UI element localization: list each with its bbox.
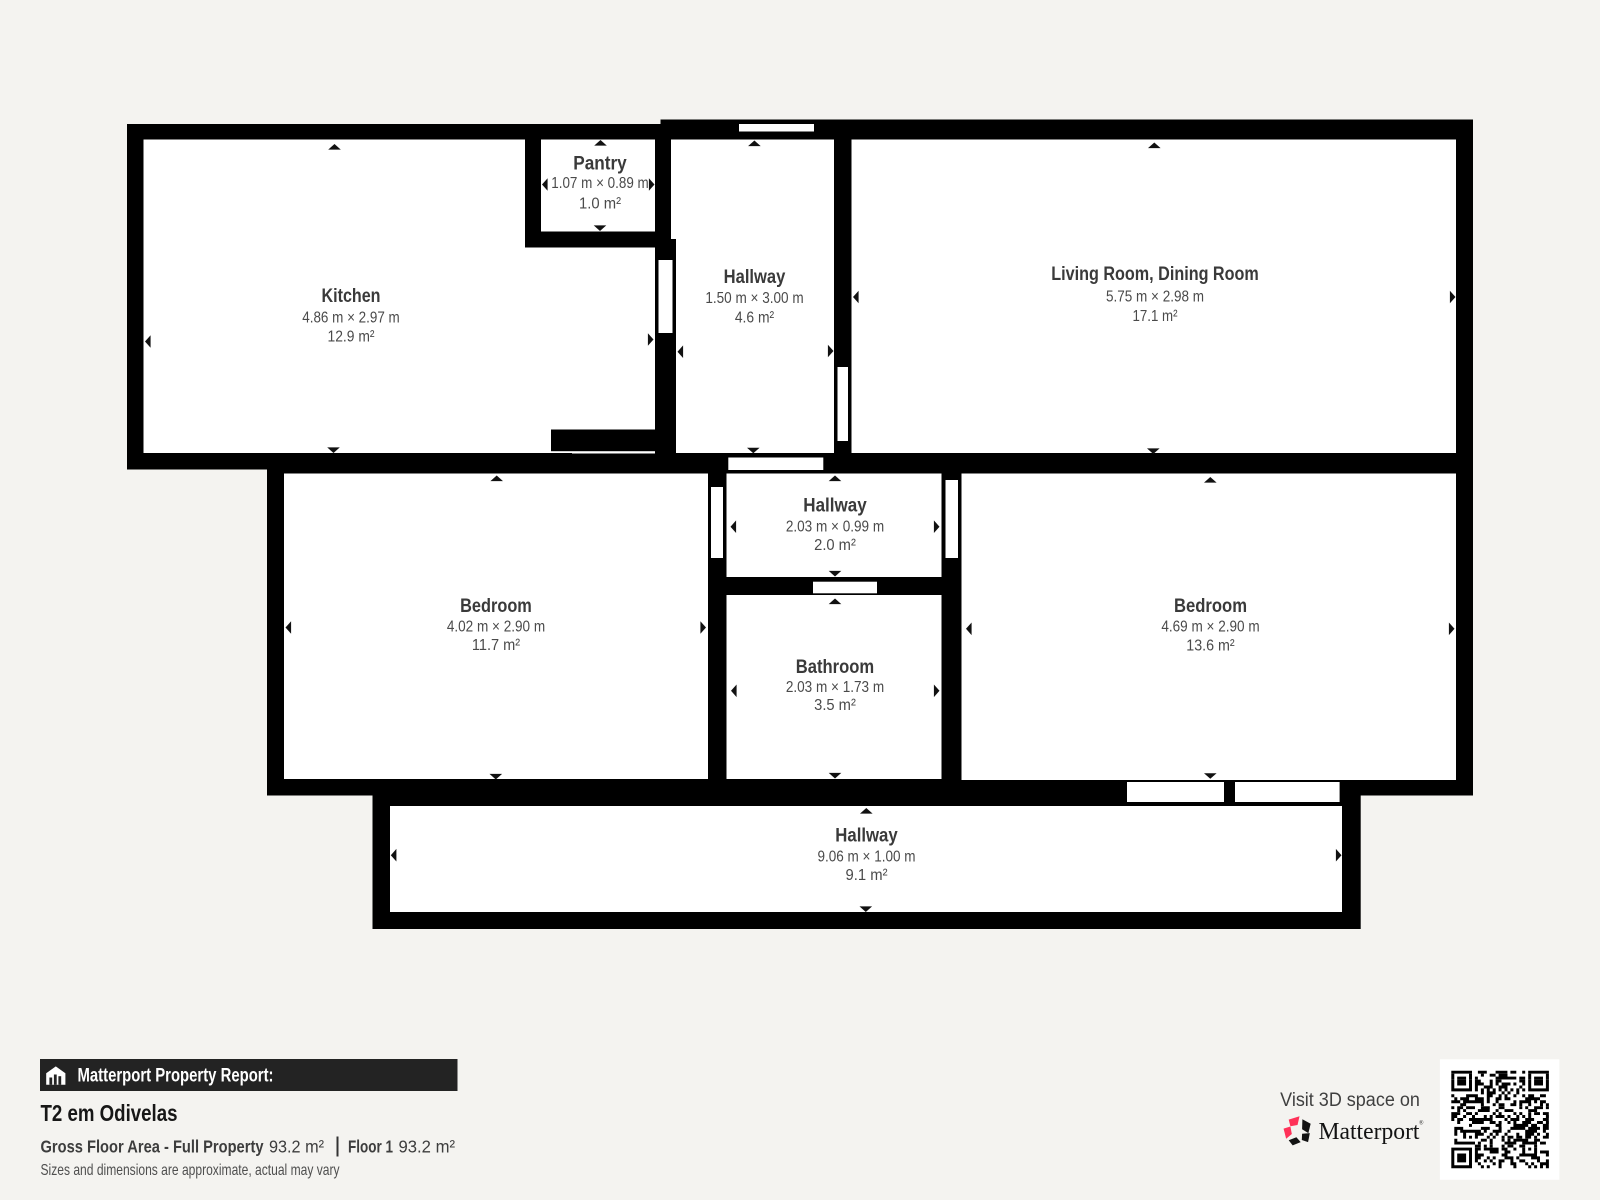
svg-text:4.69 m × 2.90 m: 4.69 m × 2.90 m: [1161, 619, 1259, 636]
svg-text:Hallway: Hallway: [724, 267, 786, 288]
svg-text:2.03 m × 1.73 m: 2.03 m × 1.73 m: [786, 679, 884, 696]
svg-text:1.50 m × 3.00 m: 1.50 m × 3.00 m: [705, 290, 803, 307]
svg-text:Gross Floor Area - Full Proper: Gross Floor Area - Full Property: [41, 1136, 264, 1156]
svg-text:93.2 m²: 93.2 m²: [269, 1136, 324, 1156]
svg-text:Bathroom: Bathroom: [796, 657, 874, 678]
svg-text:9.06 m × 1.00 m: 9.06 m × 1.00 m: [818, 849, 916, 866]
svg-text:Kitchen: Kitchen: [322, 286, 381, 307]
svg-text:Sizes and dimensions are appro: Sizes and dimensions are approximate, ac…: [41, 1162, 340, 1179]
svg-text:4.02 m × 2.90 m: 4.02 m × 2.90 m: [447, 619, 545, 636]
svg-text:4.6 m²: 4.6 m²: [735, 310, 775, 327]
svg-text:12.9 m²: 12.9 m²: [328, 329, 376, 346]
svg-text:Living Room, Dining Room: Living Room, Dining Room: [1051, 264, 1259, 285]
svg-text:Visit 3D space on: Visit 3D space on: [1280, 1090, 1420, 1111]
svg-text:Bedroom: Bedroom: [460, 596, 532, 617]
svg-text:93.2 m²: 93.2 m²: [399, 1136, 456, 1156]
svg-text:3.5 m²: 3.5 m²: [814, 697, 856, 714]
svg-text:Matterport: Matterport: [1319, 1119, 1420, 1145]
svg-text:5.75 m × 2.98 m: 5.75 m × 2.98 m: [1106, 289, 1204, 306]
svg-text:T2 em Odivelas: T2 em Odivelas: [41, 1100, 178, 1126]
svg-text:Hallway: Hallway: [835, 826, 898, 847]
svg-text:Floor 1: Floor 1: [348, 1136, 393, 1156]
svg-text:1.07 m × 0.89 m: 1.07 m × 0.89 m: [551, 175, 649, 192]
svg-text:11.7 m²: 11.7 m²: [472, 637, 521, 654]
svg-text:Matterport Property Report:: Matterport Property Report:: [78, 1065, 274, 1086]
svg-text:9.1 m²: 9.1 m²: [846, 867, 889, 884]
svg-text:Hallway: Hallway: [803, 496, 867, 517]
svg-text:4.86 m × 2.97 m: 4.86 m × 2.97 m: [302, 310, 400, 327]
svg-text:Bedroom: Bedroom: [1174, 596, 1247, 617]
svg-text:®: ®: [1419, 1120, 1424, 1127]
svg-text:13.6 m²: 13.6 m²: [1186, 638, 1235, 655]
svg-text:Pantry: Pantry: [573, 154, 627, 175]
svg-text:1.0 m²: 1.0 m²: [579, 196, 622, 213]
svg-text:17.1 m²: 17.1 m²: [1133, 308, 1179, 325]
svg-text:2.0 m²: 2.0 m²: [814, 537, 856, 554]
svg-text:2.03 m × 0.99 m: 2.03 m × 0.99 m: [786, 519, 884, 536]
